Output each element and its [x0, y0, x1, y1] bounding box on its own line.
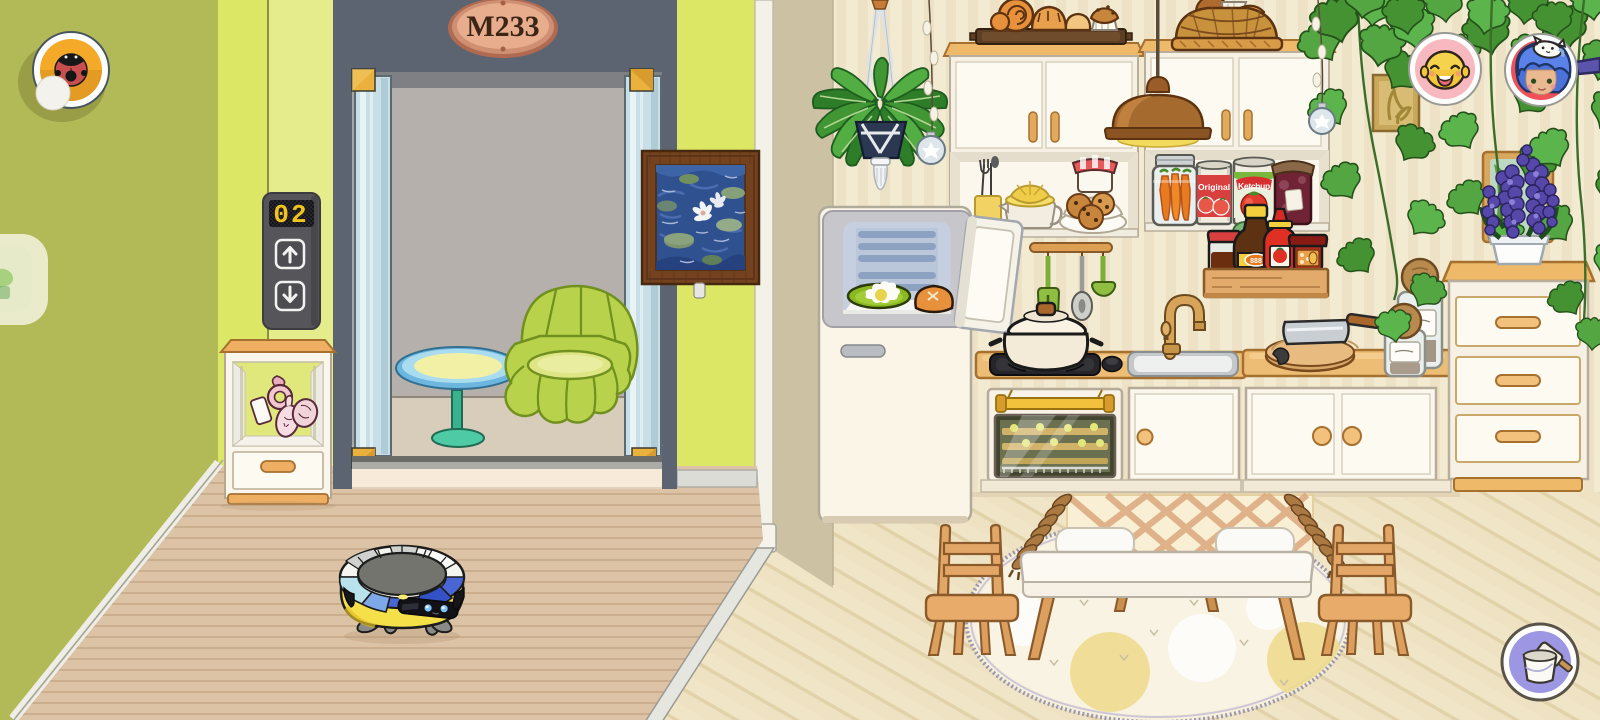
svg-text:Original: Original: [1198, 182, 1230, 192]
svg-text:M233: M233: [466, 10, 539, 43]
svg-text:Ketchup: Ketchup: [1238, 181, 1270, 191]
svg-text:02: 02: [273, 200, 308, 230]
svg-text:888: 888: [1250, 258, 1262, 265]
